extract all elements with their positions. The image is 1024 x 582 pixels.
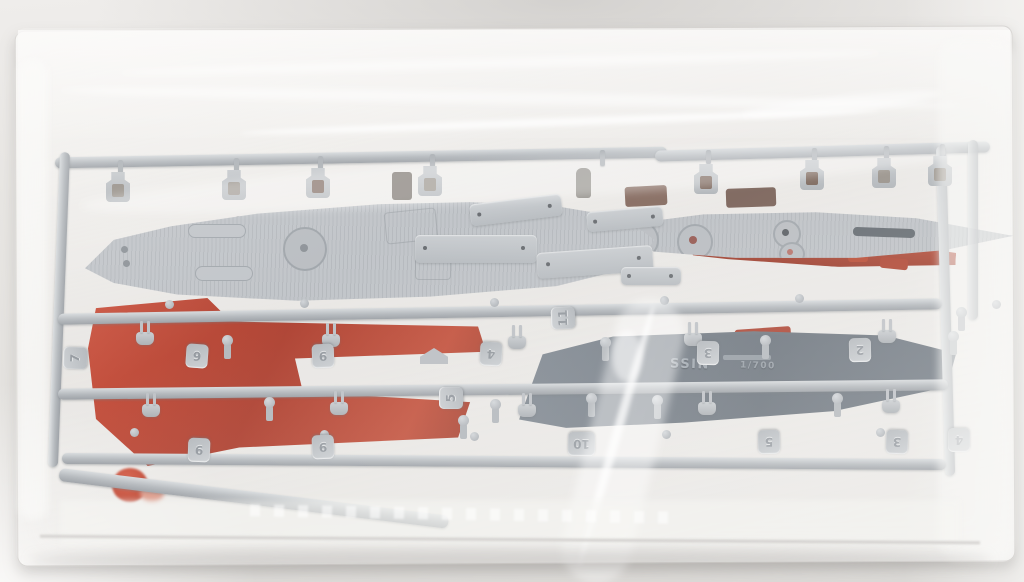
- bag-drop-shadow: [30, 550, 990, 570]
- round-part: [490, 298, 499, 307]
- searchlight-part: [266, 406, 273, 421]
- part-number-tag: 9: [188, 438, 211, 463]
- gun-turret-part: [882, 400, 900, 413]
- searchlight-part: [834, 402, 841, 417]
- round-part: [165, 300, 174, 309]
- round-part: [470, 432, 479, 441]
- part-number-tag: 3: [886, 430, 909, 455]
- part-number-tag: 11: [551, 307, 576, 330]
- deck-boat-recess: [188, 224, 246, 238]
- deck-fitting: [123, 260, 130, 267]
- gun-turret-part: [508, 336, 526, 349]
- part-number-tag: 2: [849, 338, 871, 362]
- superstructure-plate: [621, 267, 681, 285]
- funnel-center: [782, 229, 789, 236]
- hull-scale-molding: 1/700: [740, 361, 776, 372]
- round-part: [795, 294, 804, 303]
- barbette-center: [689, 236, 697, 244]
- sprue-gate: [118, 160, 123, 174]
- photo-of-model-kit-bag: SSIN 1/700: [0, 0, 1024, 582]
- searchlight-part: [460, 424, 467, 439]
- round-part: [300, 299, 309, 308]
- gun-turret-part: [698, 402, 716, 415]
- gun-turret-part: [518, 404, 536, 417]
- deck-fitting: [121, 246, 128, 253]
- mast-part: [762, 344, 769, 359]
- gun-turret-part: [136, 332, 154, 345]
- part-number-tag: 7: [63, 347, 88, 370]
- stern-slot: [853, 227, 915, 238]
- bag-sparkle: [612, 330, 642, 382]
- gun-turret-part: [878, 330, 896, 343]
- superstructure-parts: [415, 193, 670, 311]
- barbette-center: [300, 244, 308, 252]
- part-number-tag: 9: [312, 435, 335, 460]
- part-number-tag: 9: [312, 344, 335, 369]
- superstructure-plate: [586, 206, 663, 233]
- part-number-tag: 6: [185, 343, 209, 368]
- mast-part: [224, 344, 231, 359]
- bag-right-fold: [938, 40, 1014, 560]
- bag-left-edge-highlight: [18, 60, 48, 520]
- linoleum-deck-part: [726, 187, 777, 208]
- round-part: [662, 430, 671, 439]
- part-number-tag: 4: [479, 341, 502, 366]
- part-number-tag: 5: [758, 430, 780, 454]
- gun-turret-part: [330, 402, 348, 415]
- deck-boat-recess: [195, 266, 253, 281]
- round-part: [876, 428, 885, 437]
- part-number-tag: 3: [697, 341, 719, 365]
- searchlight-part: [492, 408, 499, 423]
- sprue-gate: [318, 156, 323, 170]
- gun-turret-part: [142, 404, 160, 417]
- round-part: [130, 428, 139, 437]
- part-number-tag: 5: [439, 387, 463, 409]
- sprue-gate: [234, 158, 239, 172]
- funnel-center: [787, 249, 793, 255]
- superstructure-plate: [415, 235, 537, 263]
